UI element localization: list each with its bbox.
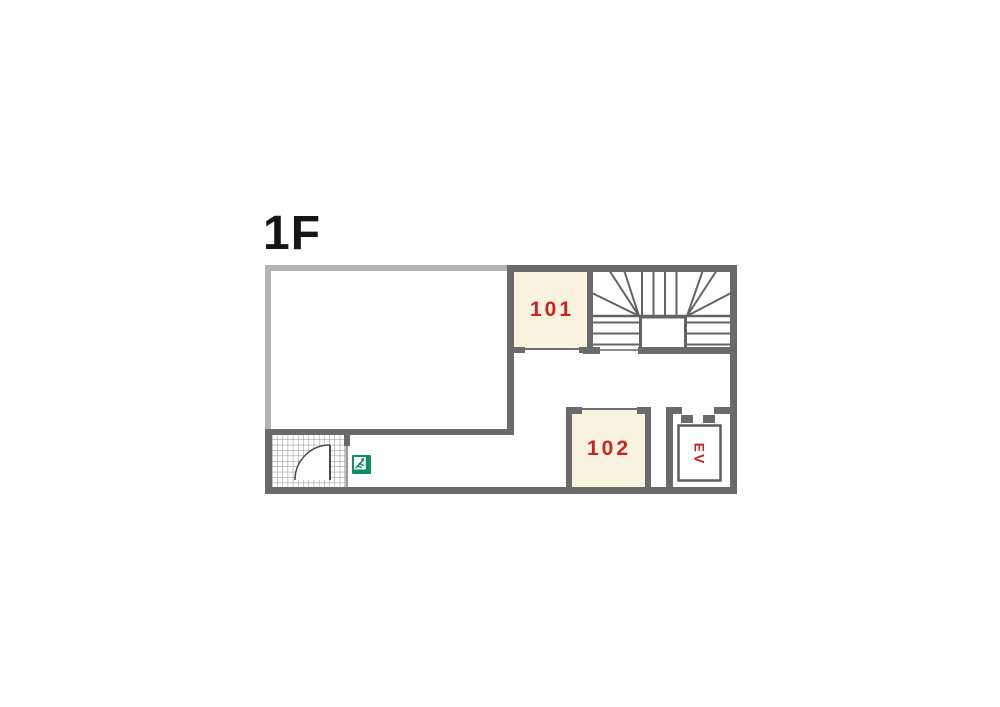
stair-bottom-wall (638, 347, 737, 354)
floor-plan-drawing (0, 0, 1000, 707)
exit-sign-icon (352, 455, 371, 474)
stair-left-treads (592, 323, 639, 345)
elevator-door-panel-left (681, 415, 693, 423)
entrance-left-wall (265, 429, 272, 494)
stair-right-winders (687, 270, 731, 316)
exit-sign-head (361, 458, 364, 461)
stair-upper-treads (642, 270, 677, 316)
entrance-doorway-stub (344, 429, 350, 446)
floor-plan-page: 1F 101 102 EV (0, 0, 1000, 707)
elevator-left-wall (666, 407, 673, 488)
exit-sign-door-edge (366, 457, 369, 470)
room-101-label: 101 (513, 271, 588, 348)
outer-right-wall (730, 265, 737, 494)
entrance-doorway-threshold (346, 446, 348, 487)
stair-bottom-stub (583, 347, 600, 354)
elevator-top-wall-left (666, 407, 682, 414)
elevator-label-box: EV (678, 425, 720, 480)
stair-core (641, 317, 686, 351)
room-102-label: 102 (569, 409, 646, 488)
elevator-label: EV (691, 440, 707, 465)
big-room-bottom-wall (265, 429, 513, 435)
stair-right-treads (687, 323, 731, 345)
big-room-left-wall (265, 265, 271, 435)
elevator-door-panel-right (703, 415, 715, 423)
outer-bottom-wall (265, 487, 737, 494)
big-room-top-wall (265, 265, 511, 271)
stairwell (592, 270, 731, 351)
floor-title: 1F (263, 210, 321, 258)
elevator-top-wall-right (714, 407, 737, 414)
room-101-door (525, 348, 579, 350)
stair-left-winders (592, 270, 639, 316)
light-walls (265, 265, 511, 435)
